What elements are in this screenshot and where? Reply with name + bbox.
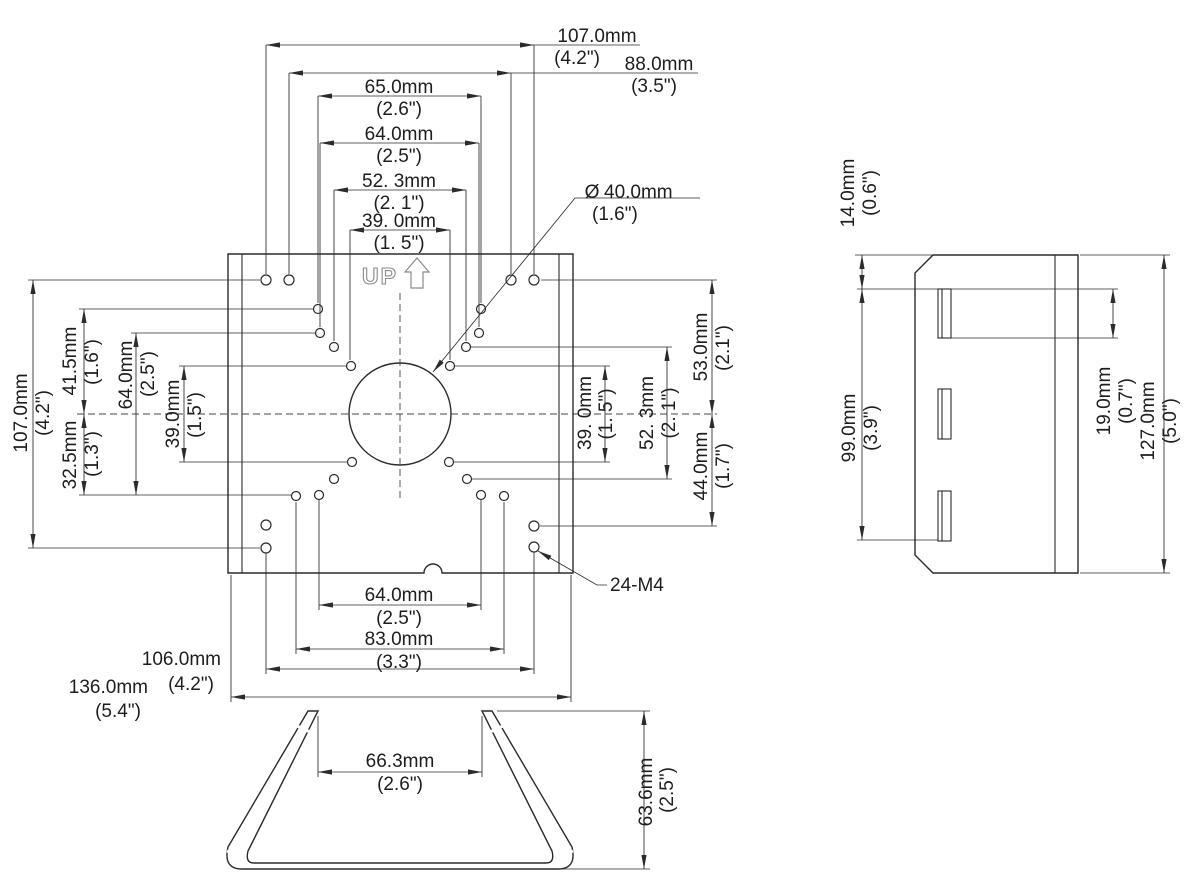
dim-label-83-in: (3.3") [376,652,422,673]
dim-label-88-top-in: (3.5") [631,76,677,97]
dim-label-39-left-in: (1.5") [185,392,206,438]
dim-label-52-right-in: (2. 1") [659,387,680,438]
dim-label-39-left-mm: 39.0mm [163,380,184,449]
front-plate-outline [228,254,573,573]
m4-hole [261,543,271,553]
dim-label-107-top-in: (4.2") [554,48,600,69]
extension-lines [28,45,1170,869]
up-arrow-icon [405,258,429,288]
side-slot [938,389,951,439]
side-view [915,255,1078,573]
dim-label-65-mm: 65.0mm [365,77,434,98]
dim-label-65-in: (2.6") [376,99,422,120]
dim-label-99-in: (3.9") [861,405,882,451]
m4-hole [462,343,471,352]
m4-hole [314,305,323,314]
up-label: UP [362,263,398,289]
dim-label-136-mm: 136.0mm [69,677,148,698]
bend-mark [490,726,503,732]
dim-label-136-in: (5.4") [95,701,141,722]
m4-hole [330,343,339,352]
m4-hole [475,329,484,338]
dim-label-53-mm: 53.0mm [691,313,712,382]
side-slot [938,491,951,541]
m4-hole [446,362,455,371]
up-marking: UP [362,258,429,289]
dim-label-106-mm: 106.0mm [142,649,221,670]
bracket-drawing-svg: UP [0,0,1200,884]
dim-label-64-left-mm: 64.0mm [116,341,137,410]
dim-label-64-bottom-mm: 64.0mm [365,585,434,606]
diameter-leader-line [433,198,700,372]
m4-hole [261,520,271,530]
dim-label-88-top-mm: 88.0mm [625,54,694,75]
m4-hole [529,542,539,552]
m4-hole [463,475,472,484]
m4-hole [477,491,486,500]
dim-label-32-mm: 32.5mm [60,421,81,490]
dim-label-53-in: (2.1") [713,325,734,371]
m4-hole [284,275,294,285]
dim-label-66-in: (2.6") [377,774,423,795]
dim-label-19-in: (0.7") [1116,378,1137,424]
side-slots [938,289,951,541]
diameter-label-mm: 40.0mm [604,182,673,203]
dim-label-39-right-in: (1. 5") [596,388,617,439]
m4-hole [445,458,454,467]
m4-hole [500,492,509,501]
dim-label-14-mm: 14.0mm [838,159,859,228]
dim-label-64-top-in: (2.5") [376,146,422,167]
m4-hole [348,458,357,467]
dim-label-63-in: (2.5") [657,767,678,813]
dim-label-64-top-mm: 64.0mm [365,124,434,145]
m4-hole [315,491,324,500]
dim-label-39-right-mm: 39. 0mm [575,376,596,450]
dim-label-44-in: (1.7") [713,443,734,489]
dim-label-127-mm: 127.0mm [1138,381,1159,460]
dim-label-41-mm: 41.5mm [60,327,81,396]
dimension-lines [33,45,1164,869]
m4-hole [261,275,271,285]
dim-label-64-bottom-in: (2.5") [376,608,422,629]
dim-label-66-mm: 66.3mm [366,751,435,772]
dim-label-106-in: (4.2") [168,674,214,695]
dim-label-41-in: (1.6") [82,339,103,385]
dim-label-63-mm: 63.6mm [636,758,657,827]
dimension-labels: 107.0mm (4.2") 88.0mm (3.5") 65.0mm (2.6… [11,26,1181,826]
dim-label-64-left-in: (2.5") [138,351,159,397]
technical-drawing-canvas: UP [0,0,1200,884]
dim-label-127-in: (5.0") [1160,398,1181,444]
side-slot [938,289,951,338]
dim-label-83-mm: 83.0mm [365,629,434,650]
m4-hole [347,362,356,371]
bend-mark [227,851,240,856]
dim-label-32-in: (1.3") [82,431,103,477]
dim-label-44-mm: 44.0mm [691,432,712,501]
dim-label-107-left-in: (4.2") [33,390,54,436]
side-view-outline [915,255,1078,573]
thread-callout-label: 24-M4 [610,575,664,596]
bend-mark [297,726,310,732]
dim-label-107-top-mm: 107.0mm [557,26,636,47]
bend-mark [560,851,573,856]
m4-hole [330,475,339,484]
dim-label-52-right-mm: 52. 3mm [637,376,658,450]
dim-label-39-top-in: (1. 5") [373,233,424,254]
dim-label-39-top-mm: 39. 0mm [362,211,436,232]
dim-label-14-in: (0.6") [860,170,881,216]
dim-label-19-mm: 19.0mm [1094,367,1115,436]
diameter-label-in: (1.6") [592,204,638,225]
m4-hole [529,521,539,531]
m4-hole [529,275,539,285]
m4-hole [292,492,301,501]
dim-label-107-left-mm: 107.0mm [11,373,32,452]
m4-hole [316,329,325,338]
dim-label-99-mm: 99.0mm [839,394,860,463]
dim-label-52-top-mm: 52. 3mm [362,171,436,192]
diameter-symbol: Ø [585,182,600,203]
